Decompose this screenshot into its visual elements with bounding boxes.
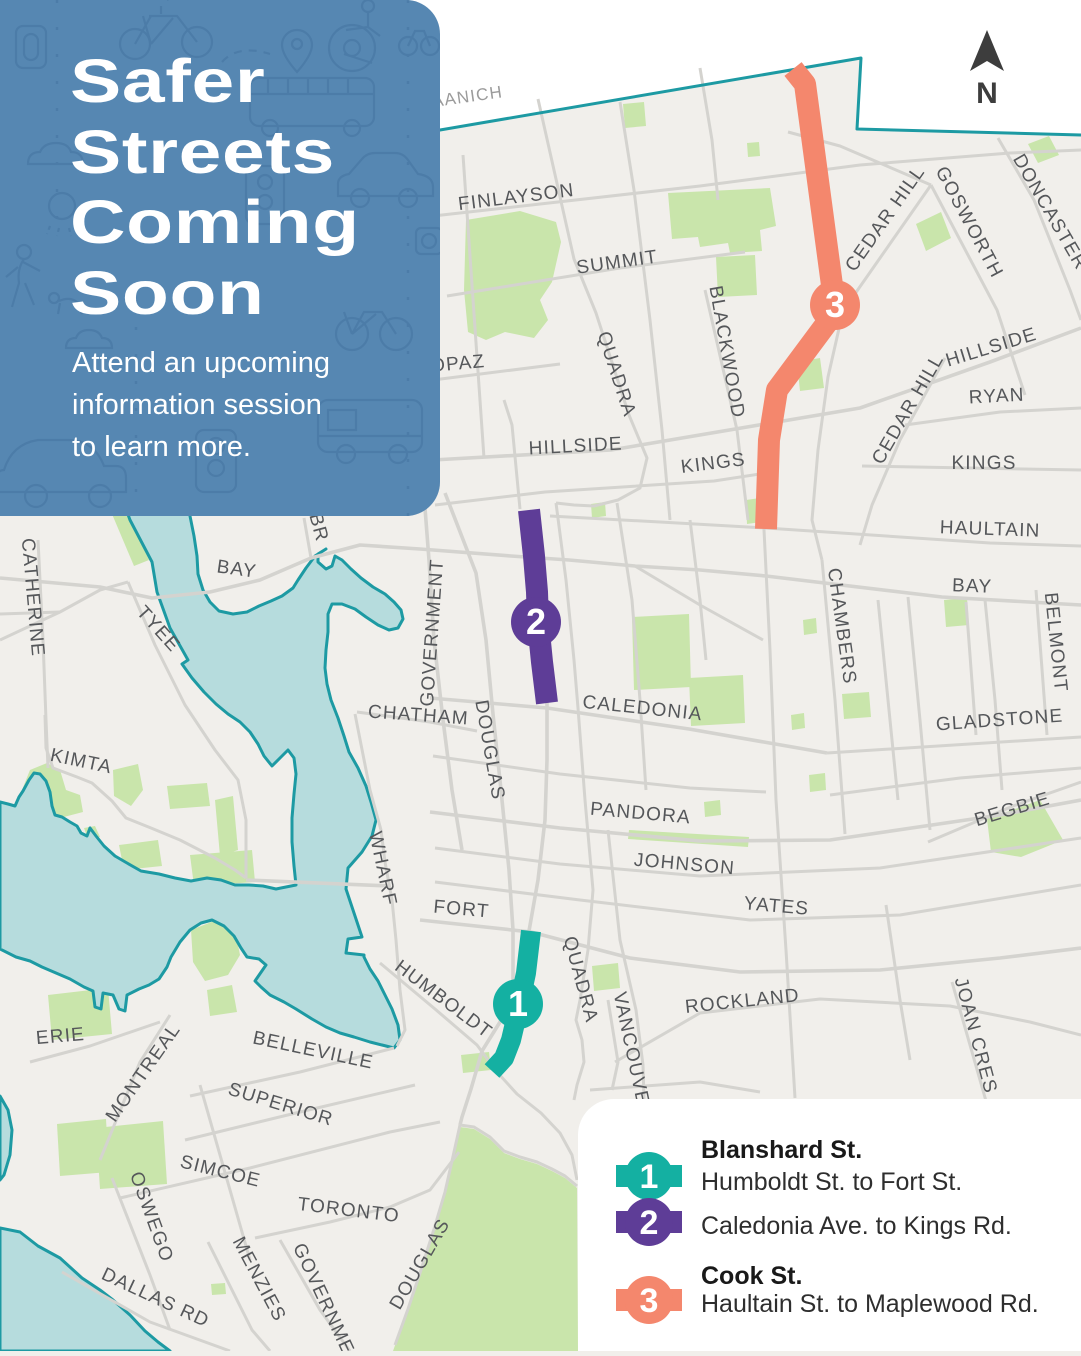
svg-text:Caledonia Ave. to Kings Rd.: Caledonia Ave. to Kings Rd. (701, 1212, 1012, 1240)
svg-text:RYAN: RYAN (968, 385, 1025, 409)
svg-text:Blanshard St.: Blanshard St. (701, 1136, 862, 1164)
svg-text:3: 3 (825, 284, 845, 325)
svg-text:2: 2 (640, 1204, 659, 1242)
svg-text:Humboldt St. to Fort St.: Humboldt St. to Fort St. (701, 1168, 962, 1196)
svg-text:Cook St.: Cook St. (701, 1262, 802, 1290)
svg-text:KINGS: KINGS (951, 453, 1016, 474)
svg-text:2: 2 (526, 601, 546, 642)
svg-text:HAULTAIN: HAULTAIN (939, 517, 1040, 542)
svg-text:Haultain St. to Maplewood Rd.: Haultain St. to Maplewood Rd. (701, 1290, 1039, 1318)
svg-text:1: 1 (640, 1158, 659, 1196)
svg-text:ERIE: ERIE (35, 1024, 86, 1049)
svg-text:N: N (976, 77, 998, 110)
svg-text:3: 3 (640, 1282, 659, 1320)
svg-text:1: 1 (508, 983, 528, 1024)
svg-text:BAY: BAY (952, 575, 993, 597)
